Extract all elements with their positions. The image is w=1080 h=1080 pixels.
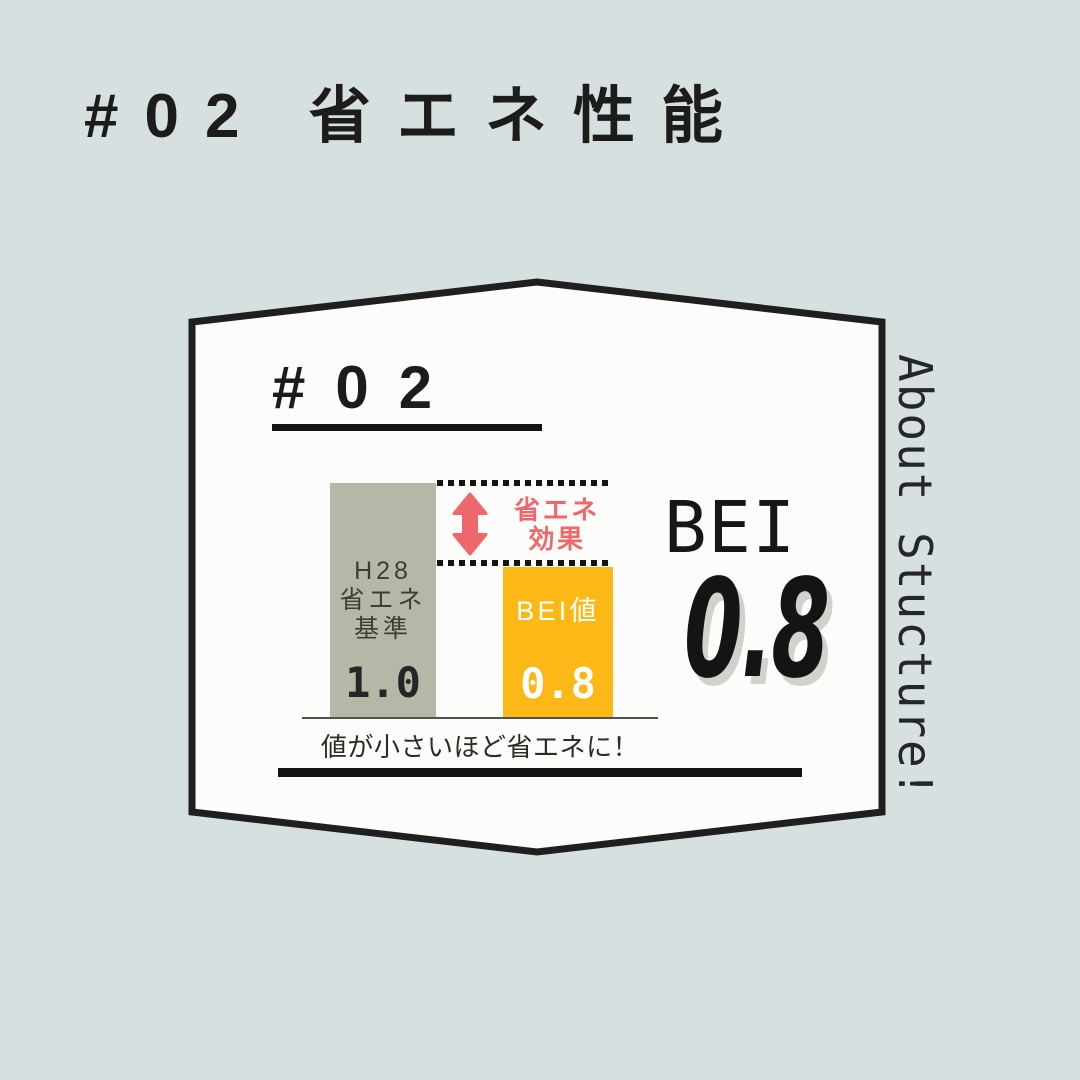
bar-standard-label: H28 省エネ 基準 xyxy=(330,557,436,644)
bar-bei: BEI値 0.8 xyxy=(503,567,613,718)
dotted-line-bei-level xyxy=(437,560,613,566)
savings-annotation: 省エネ 効果 xyxy=(498,496,616,554)
chart-baseline xyxy=(302,717,658,719)
card-number: #02 xyxy=(272,358,462,418)
chart-note: 値が小さいほど省エネに！ xyxy=(292,733,668,762)
bar-standard: H28 省エネ 基準 1.0 xyxy=(330,483,436,718)
bar-standard-label-line1: H28 xyxy=(330,557,436,586)
poster-canvas: #02 省エネ性能 #02 H28 省エネ 基準 1.0 BEI値 0.8 省エ… xyxy=(0,0,1080,1080)
savings-annotation-line1: 省エネ xyxy=(498,496,616,525)
dotted-line-standard-level xyxy=(437,480,613,486)
side-label-vertical: About Stucture! xyxy=(892,354,938,799)
card-bottom-rule xyxy=(278,768,802,777)
result-value: 0.8 xyxy=(684,562,828,698)
bar-standard-label-line2: 省エネ xyxy=(330,586,436,615)
bar-bei-label: BEI値 xyxy=(503,598,613,625)
bar-standard-value: 1.0 xyxy=(330,662,436,704)
bar-bei-value: 0.8 xyxy=(503,663,613,705)
card-number-underline xyxy=(272,424,542,431)
bar-standard-label-line3: 基準 xyxy=(330,615,436,644)
savings-annotation-line2: 効果 xyxy=(498,525,616,554)
double-arrow-icon xyxy=(452,492,488,556)
